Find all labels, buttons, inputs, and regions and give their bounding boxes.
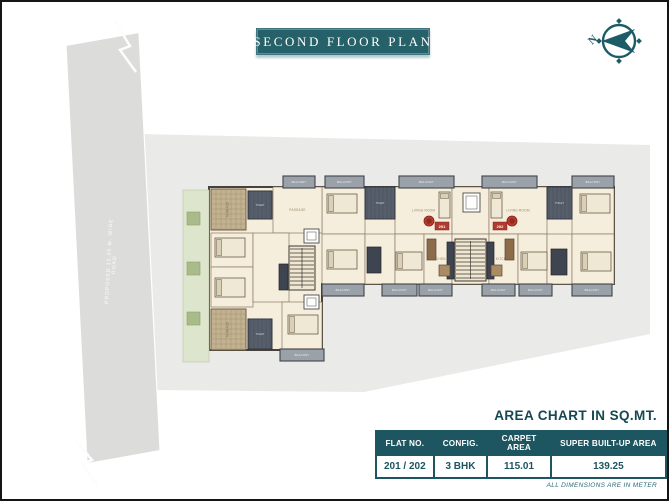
bed-pillow xyxy=(441,194,449,199)
lift xyxy=(304,295,319,309)
col-flat-no: FLAT NO. xyxy=(376,431,434,455)
area-chart-data-row: 201 / 202 3 BHK 115.01 139.25 xyxy=(376,455,666,478)
shrub xyxy=(187,262,200,275)
bed-pillow xyxy=(493,194,501,199)
balcony-label: BALCONY xyxy=(295,353,310,357)
balcony-label: BALCONY xyxy=(419,180,434,184)
toilet-label: TOILET xyxy=(255,203,264,207)
toilet-label: TOILET xyxy=(255,332,264,336)
armchair-seat xyxy=(509,218,515,224)
bed-pillow xyxy=(329,252,334,268)
compass-point-south xyxy=(616,58,622,64)
terrace-label: TERRACE xyxy=(226,321,230,337)
cell-config: 3 BHK xyxy=(434,455,488,478)
cell-carpet-area: 115.01 xyxy=(487,455,551,478)
compass-point-east xyxy=(636,38,642,44)
balcony-label: BALCONY xyxy=(502,180,517,184)
road-label-line2: ROAD xyxy=(111,255,118,274)
cell-flat-no: 201 / 202 xyxy=(376,455,434,478)
bed-pillow xyxy=(398,254,403,269)
compass-point-north xyxy=(616,18,622,24)
area-chart-header-row: FLAT NO. CONFIG. CARPET AREA SUPER BUILT… xyxy=(376,431,666,455)
flat-number-text: 202 xyxy=(497,224,504,229)
dimensions-footnote: ALL DIMENSIONS ARE IN METER xyxy=(375,482,657,489)
bed-pillow xyxy=(217,280,222,296)
balcony-label: BALCONY xyxy=(337,180,352,184)
service-block xyxy=(367,247,381,273)
road-band xyxy=(66,33,160,463)
cell-super-builtup-area: 139.25 xyxy=(551,455,666,478)
area-chart-table: FLAT NO. CONFIG. CARPET AREA SUPER BUILT… xyxy=(375,430,667,479)
col-super-builtup-area: SUPER BUILT-UP AREA xyxy=(551,431,666,455)
bed-pillow xyxy=(582,196,587,212)
col-carpet-area: CARPET AREA xyxy=(487,431,551,455)
north-arrow-icon xyxy=(602,29,635,53)
room-label: LIVING ROOM xyxy=(506,209,530,213)
dining-table-icon xyxy=(505,239,514,260)
area-chart-title: AREA CHART IN SQ.MT. xyxy=(357,408,657,423)
compass-north-letter: N xyxy=(586,33,600,47)
dining-table-icon xyxy=(427,239,436,260)
service-block xyxy=(551,249,567,275)
armchair-seat xyxy=(426,218,432,224)
room-label: PASSAGE xyxy=(289,208,305,212)
bed-pillow xyxy=(329,196,334,212)
flat-number-text: 201 xyxy=(439,224,446,229)
service-block xyxy=(279,264,288,290)
balcony-label: BALCONY xyxy=(528,288,543,292)
balcony-label: BALCONY xyxy=(392,288,407,292)
room-label: LIVING ROOM xyxy=(412,209,436,213)
compass: N xyxy=(586,18,642,64)
shrub xyxy=(187,312,200,325)
balcony-label: BALCONY xyxy=(491,288,506,292)
balcony-label: BALCONY xyxy=(336,288,351,292)
balcony-label: BALCONY xyxy=(428,288,443,292)
bed-pillow xyxy=(217,240,222,256)
balcony-label: BALCONY xyxy=(585,288,600,292)
terrace-label: TERRACE xyxy=(226,201,230,217)
floor-plan-page: PROPOSED 12.00 M. WIDE ROAD BEDROOMLIVIN… xyxy=(0,0,669,501)
lift xyxy=(304,229,319,243)
kitchen-counter xyxy=(439,265,450,276)
site-plan-svg: PROPOSED 12.00 M. WIDE ROAD BEDROOMLIVIN… xyxy=(2,2,669,501)
toilet-label: TOILET xyxy=(375,201,384,205)
col-config: CONFIG. xyxy=(434,431,488,455)
bed-pillow xyxy=(290,317,295,333)
kitchen-counter xyxy=(491,265,502,276)
toilet-label: TOILET xyxy=(555,201,564,205)
balcony-label: BALCONY xyxy=(586,180,601,184)
page-title: SECOND FLOOR PLAN xyxy=(256,28,430,55)
bed-pillow xyxy=(583,254,588,270)
shrub xyxy=(187,212,200,225)
bed-pillow xyxy=(523,254,528,269)
balcony-label: BALCONY xyxy=(292,180,307,184)
